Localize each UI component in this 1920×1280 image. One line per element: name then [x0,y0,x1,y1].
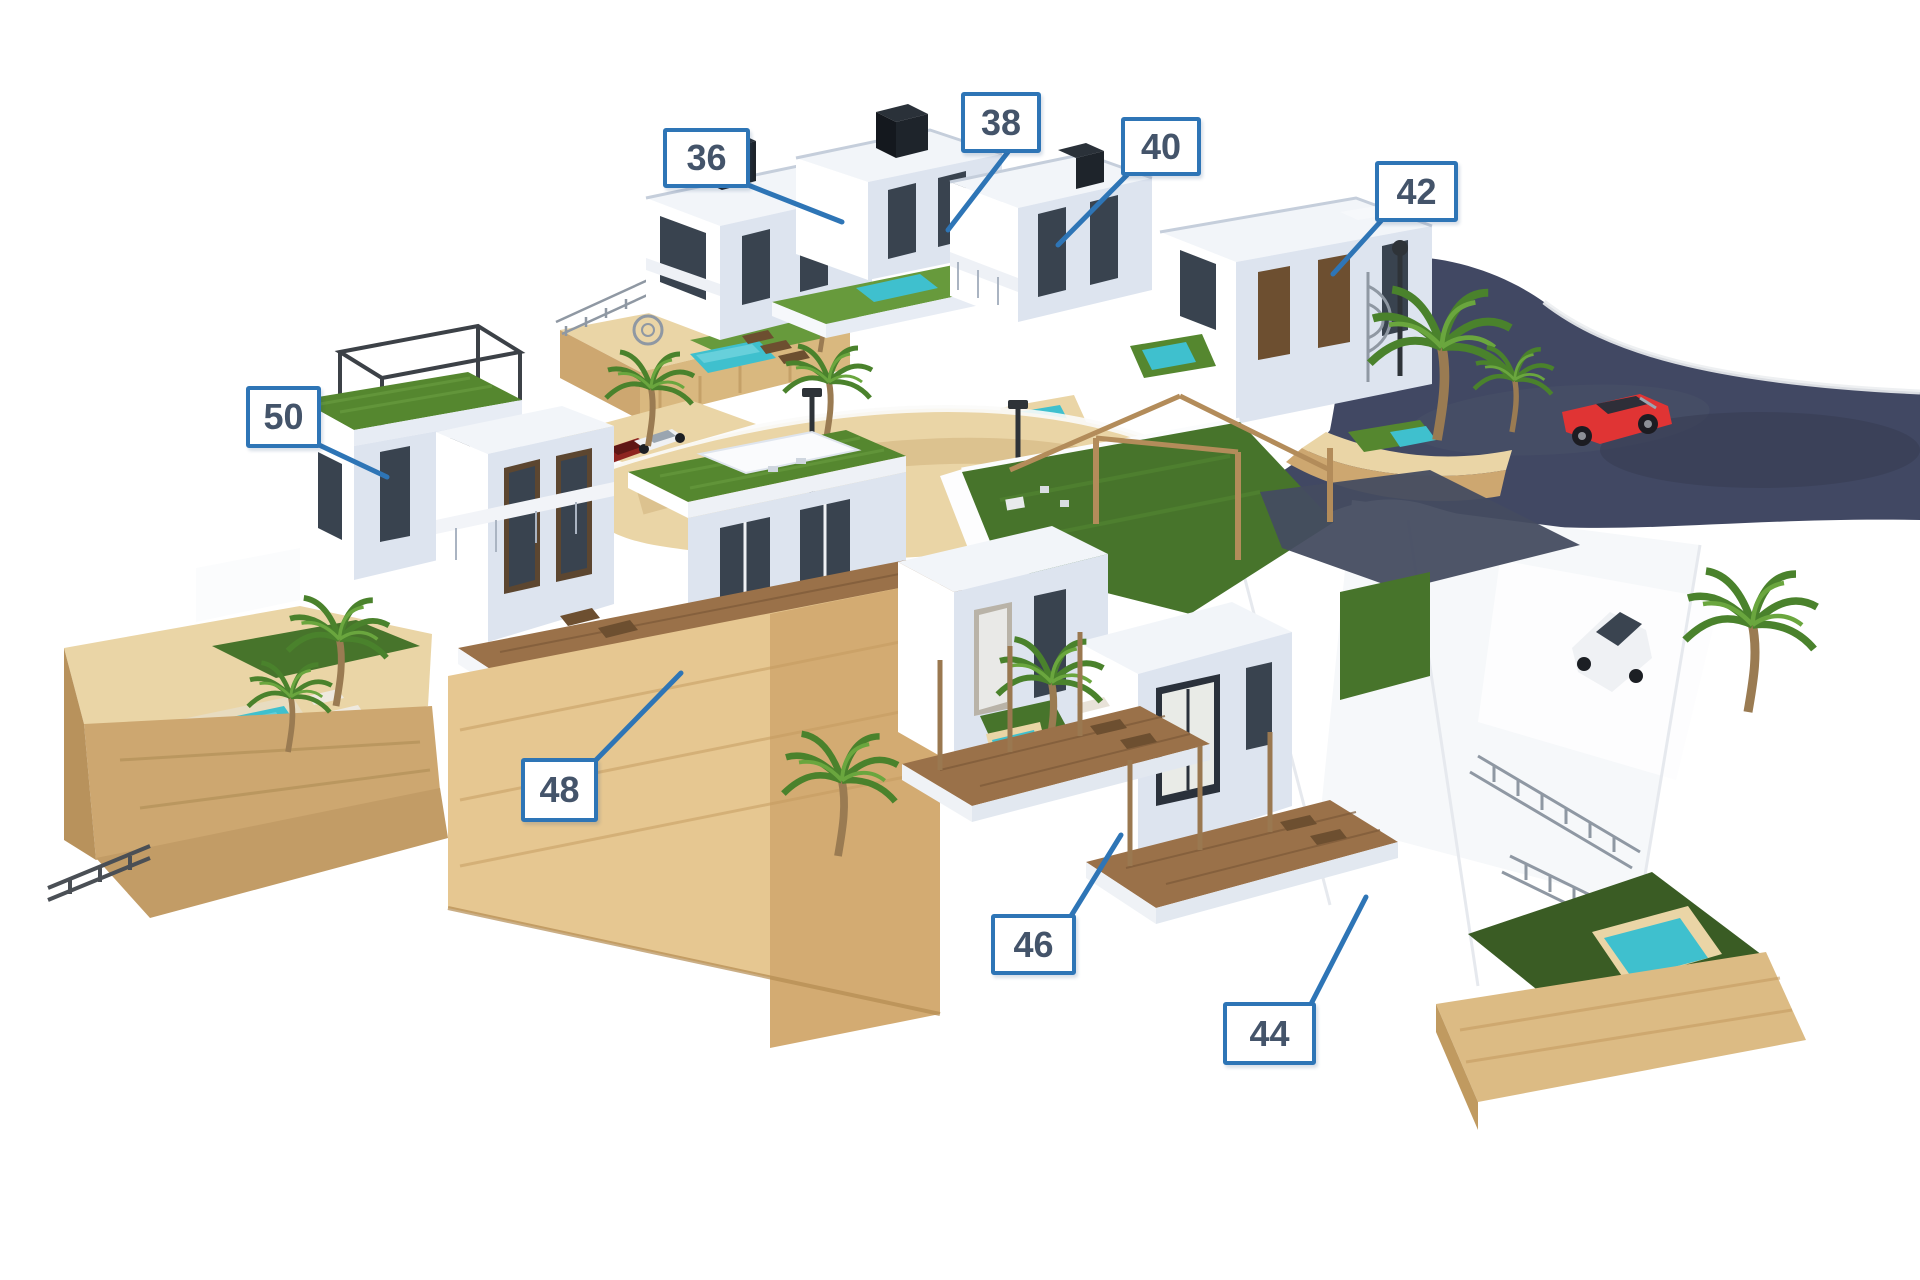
site-plan-3d-render: 36 38 40 42 44 46 48 50 [0,0,1920,1280]
scene-canvas [0,0,1920,1280]
unit-callout-40: 40 [1121,117,1201,176]
unit-callout-44: 44 [1223,1002,1316,1065]
unit-callout-36: 36 [663,128,750,188]
unit-callout-46: 46 [991,914,1076,975]
unit-callout-48: 48 [521,758,598,822]
unit-callout-38: 38 [961,92,1041,153]
unit-callout-50: 50 [246,386,321,448]
unit-callout-42: 42 [1375,161,1458,222]
